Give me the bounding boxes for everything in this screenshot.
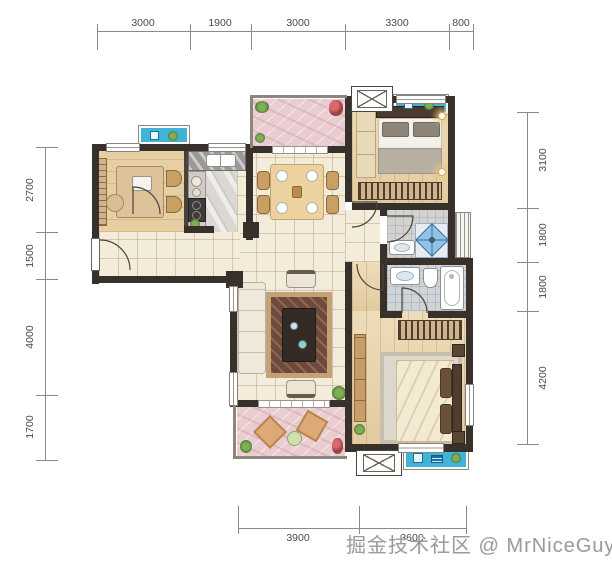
bathroom2-door-arc — [402, 288, 427, 313]
study-door-arc — [133, 187, 160, 214]
watermark-text: 掘金技术社区 @ MrNiceGuy — [346, 529, 612, 558]
entry-door-arc — [100, 240, 130, 270]
bedroom1-door-arc — [352, 202, 377, 227]
bathroom1-door-arc — [387, 216, 413, 242]
bedroom2-door-arc — [357, 264, 383, 290]
floor-plan-canvas: 3000 1900 3000 3300 800 2700 1500 4000 1… — [0, 0, 612, 571]
door-arcs — [0, 0, 612, 571]
